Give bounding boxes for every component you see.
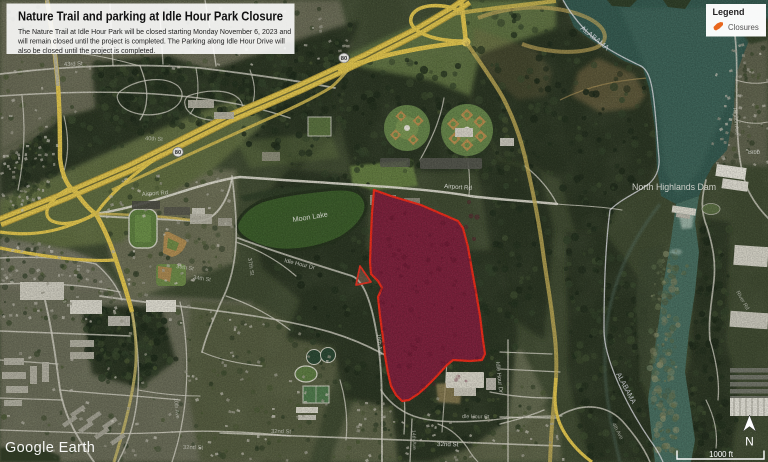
svg-text:Closures: Closures bbox=[728, 23, 759, 32]
svg-text:N: N bbox=[745, 435, 754, 449]
svg-text:Google Earth: Google Earth bbox=[5, 440, 95, 456]
svg-text:will remain closed until the p: will remain closed until the project is … bbox=[17, 39, 285, 46]
svg-text:The Nature Trail at Idle Hour: The Nature Trail at Idle Hour Park will … bbox=[18, 29, 291, 36]
svg-text:Nature Trail and parking at Id: Nature Trail and parking at Idle Hour Pa… bbox=[18, 9, 283, 24]
svg-text:also be closed until the proje: also be closed until the project is comp… bbox=[18, 48, 155, 55]
svg-text:Legend: Legend bbox=[713, 7, 745, 17]
svg-text:1000 ft: 1000 ft bbox=[709, 450, 734, 459]
